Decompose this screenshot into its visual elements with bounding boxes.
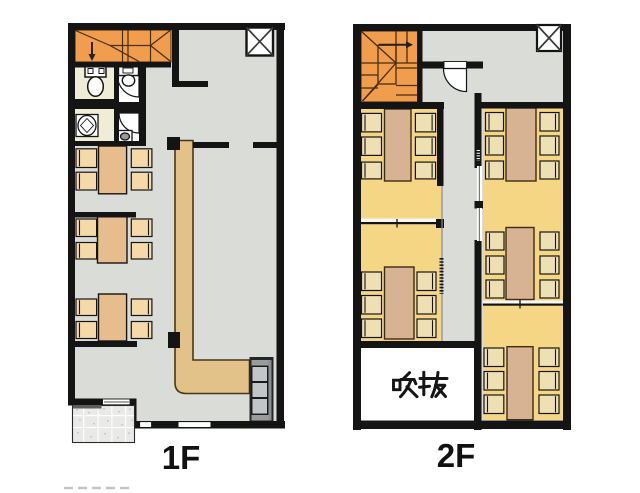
svg-text:2F: 2F [437, 437, 476, 474]
svg-text:1F: 1F [162, 439, 201, 476]
